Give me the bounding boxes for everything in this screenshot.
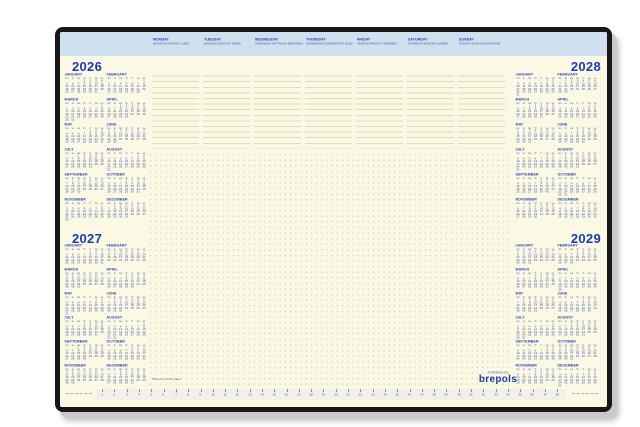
calendar-sheet: MONDAYMAANDAG MONTAG LUNDITUESDAYDINSDAG… (60, 32, 607, 407)
ruler-mark-4: 4 (133, 389, 145, 400)
week-row: 2728293031 (64, 166, 105, 169)
ruler-mark-23: 23 (367, 389, 379, 400)
printed-note-text: Printed on FSC paper (152, 378, 272, 381)
week-row: 31 (515, 169, 556, 172)
mini-month-2027-july: JULYmotuwethfrsasu1234567891011121314151… (64, 316, 105, 340)
week-row: 293031 (515, 262, 556, 265)
day-name-translations: DINSDAG DIENSTAG MARDI (204, 42, 259, 45)
ruler-mark-5: 5 (145, 389, 157, 400)
year-label-2028: 2028 (571, 59, 601, 74)
mini-month-2026-april: APRILmotuwethfrsasu123456789101112131415… (106, 98, 147, 122)
mini-month-2026-december: DECEMBERmotuwethfrsasu123456789101112131… (106, 198, 147, 222)
day-column-label-monday: MONDAYMAANDAG MONTAG LUNDI (153, 38, 203, 54)
ruler-mark-34: 34 (502, 389, 514, 400)
week-row: 25262728293031 (106, 358, 147, 361)
week-row: 22232425262728 (106, 259, 147, 262)
mini-month-2028-may: MAYmotuwethfrsasu12345678910111213141516… (515, 123, 556, 147)
week-row: 25262728293031 (557, 216, 598, 219)
ruler-mark-27: 27 (416, 389, 428, 400)
day-name-translations: VRIJDAG FREITAG VENDREDI (357, 42, 412, 45)
ruler-mark-21: 21 (342, 389, 354, 400)
mini-month-2027-august: AUGUSTmotuwethfrsasu12345678910111213141… (106, 316, 147, 340)
ruled-writing-column (203, 71, 250, 149)
ruler-mark-3: 3 (121, 389, 133, 400)
mini-month-2029-july: JULYmotuwethfrsasu1234567891011121314151… (515, 316, 556, 340)
mini-month-2027-april: APRILmotuwethfrsasu123456789101112131415… (106, 268, 147, 292)
mini-month-2026-september: SEPTEMBERmotuwethfrsasu12345678910111213… (64, 173, 105, 197)
centimeter-ruler: 1234567891011121314151617181920212223242… (96, 389, 566, 400)
ruled-writing-column (152, 71, 199, 149)
brepols-logo: brepols (468, 375, 528, 385)
ruler-mark-22: 22 (354, 389, 366, 400)
week-row: 2728293031 (557, 334, 598, 337)
mini-month-2029-may: MAYmotuwethfrsasu12345678910111213141516… (515, 292, 556, 316)
mini-month-2029-march: MARCHmotuwethfrsasu123456789101112131415… (515, 268, 556, 292)
ruled-writing-column (254, 71, 301, 149)
mini-month-2028-july: JULYmotuwethfrsasu1234567891011121314151… (515, 148, 556, 172)
mini-month-2029-january: JANUARYmotuwethfrsasu1234567891011121314… (515, 244, 556, 268)
ruler-mark-28: 28 (428, 389, 440, 400)
ruler-mark-26: 26 (403, 389, 415, 400)
week-row: 30 (64, 219, 105, 222)
mini-month-2028-june: JUNEmotuwethfrsasu1234567891011121314151… (557, 123, 598, 147)
ruler-mark-24: 24 (379, 389, 391, 400)
ruled-writing-column (356, 71, 403, 149)
mini-month-2028-january: JANUARYmotuwethfrsasu1234567891011121314… (515, 73, 556, 97)
fold-mark-right (572, 393, 598, 394)
week-row: 28293031 (515, 310, 556, 313)
week-row: 28293031 (106, 216, 147, 219)
week-row: 282930 (106, 310, 147, 313)
ruler-mark-37: 37 (539, 389, 551, 400)
week-row: 2728293031 (515, 116, 556, 119)
ruler-mark-18: 18 (305, 389, 317, 400)
week-row: 293031 (64, 286, 105, 289)
ruler-mark-1: 1 (96, 389, 108, 400)
ruler-mark-20: 20 (330, 389, 342, 400)
ruler-mark-31: 31 (465, 389, 477, 400)
ruler-mark-9: 9 (194, 389, 206, 400)
mini-month-2028-april: APRILmotuwethfrsasu123456789101112131415… (557, 98, 598, 122)
ruler-mark-33: 33 (490, 389, 502, 400)
week-row: 262728293031 (106, 191, 147, 194)
mini-month-2027-march: MARCHmotuwethfrsasu123456789101112131415… (64, 268, 105, 292)
fold-mark-left (66, 393, 92, 394)
ruled-writing-column (407, 71, 454, 149)
ruler-mark-6: 6 (157, 389, 169, 400)
ruler-mark-10: 10 (207, 389, 219, 400)
mini-month-2029-february: FEBRUARYmotuwethfrsasu123456789101112131… (557, 244, 598, 268)
ruler-mark-29: 29 (440, 389, 452, 400)
day-column-label-friday: FRIDAYVRIJDAG FREITAG VENDREDI (357, 38, 407, 54)
printed-note: Printed on FSC paper (152, 378, 272, 386)
mini-month-2028-september: SEPTEMBERmotuwethfrsasu12345678910111213… (515, 173, 556, 197)
mini-month-2028-august: AUGUSTmotuwethfrsasu12345678910111213141… (557, 148, 598, 172)
week-row: 25262728293031 (64, 262, 105, 265)
mini-month-2029-june: JUNEmotuwethfrsasu1234567891011121314151… (557, 292, 598, 316)
day-name-translations: DONDERDAG DONNERSTAG JEUDI (306, 42, 361, 45)
week-row: 27282930 (64, 358, 105, 361)
mini-month-2028-february: FEBRUARYmotuwethfrsasu123456789101112131… (557, 73, 598, 97)
mini-month-2027-june: JUNEmotuwethfrsasu1234567891011121314151… (106, 292, 147, 316)
ruled-writing-column (305, 71, 352, 149)
day-name-translations: ZATERDAG SAMSTAG SAMEDI (408, 42, 463, 45)
mini-month-2029-april: APRILmotuwethfrsasu123456789101112131415… (557, 268, 598, 292)
mini-month-2028-october: OCTOBERmotuwethfrsasu1234567891011121314… (557, 173, 598, 197)
week-row: 262728293031 (64, 334, 105, 337)
week-row: 262728293031 (64, 91, 105, 94)
day-column-label-wednesday: WEDNESDAYWOENSDAG MITTWOCH MERCREDI (255, 38, 305, 54)
publisher-block: Published by brepols (468, 370, 528, 385)
ruler-mark-25: 25 (391, 389, 403, 400)
ruler-mark-36: 36 (526, 389, 538, 400)
ruler-mark-11: 11 (219, 389, 231, 400)
week-row: 2728293031 (106, 382, 147, 385)
week-row: 262728293031 (515, 286, 556, 289)
ruler-mark-2: 2 (108, 389, 120, 400)
desk-pad: MONDAYMAANDAG MONTAG LUNDITUESDAYDINSDAG… (55, 27, 612, 412)
ruler-mark-38: 38 (551, 389, 563, 400)
mini-month-2028-december: DECEMBERmotuwethfrsasu123456789101112131… (557, 198, 598, 222)
week-row: 2627282930 (106, 286, 147, 289)
ruler-mark-8: 8 (182, 389, 194, 400)
week-row: 3031 (64, 119, 105, 122)
ruler-mark-14: 14 (256, 389, 268, 400)
mini-month-2026-may: MAYmotuwethfrsasu12345678910111213141516… (64, 123, 105, 147)
day-name-translations: WOENSDAG MITTWOCH MERCREDI (255, 42, 310, 45)
week-row: 252627282930 (557, 310, 598, 313)
mini-month-2026-february: FEBRUARYmotuwethfrsasu123456789101112131… (106, 73, 147, 97)
week-row: 293031 (515, 141, 556, 144)
mini-month-2027-may: MAYmotuwethfrsasu12345678910111213141516… (64, 292, 105, 316)
mini-month-2026-november: NOVEMBERmotuwethfrsasu123456789101112131… (64, 198, 105, 222)
mini-month-2029-october: OCTOBERmotuwethfrsasu1234567891011121314… (557, 340, 598, 364)
ruler-mark-12: 12 (231, 389, 243, 400)
week-row: 2627282930 (557, 141, 598, 144)
mini-month-2029-august: AUGUSTmotuwethfrsasu12345678910111213141… (557, 316, 598, 340)
day-column-label-sunday: SUNDAYZONDAG SONNTAG DIMANCHE (459, 38, 509, 54)
mini-month-2028-november: NOVEMBERmotuwethfrsasu123456789101112131… (515, 198, 556, 222)
ruler-mark-7: 7 (170, 389, 182, 400)
ruler-mark-15: 15 (268, 389, 280, 400)
day-column-label-tuesday: TUESDAYDINSDAG DIENSTAG MARDI (204, 38, 254, 54)
year-label-2026: 2026 (72, 59, 102, 74)
mini-month-2026-july: JULYmotuwethfrsasu1234567891011121314151… (64, 148, 105, 172)
ruler-mark-17: 17 (293, 389, 305, 400)
mini-month-2026-march: MARCHmotuwethfrsasu123456789101112131415… (64, 98, 105, 122)
mini-month-2026-august: AUGUSTmotuwethfrsasu12345678910111213141… (106, 148, 147, 172)
ruled-writing-column (458, 71, 505, 149)
ruler-mark-32: 32 (477, 389, 489, 400)
week-row: 31 (515, 94, 556, 97)
week-row: 3031 (557, 194, 598, 197)
mini-month-2028-march: MARCHmotuwethfrsasu123456789101112131415… (515, 98, 556, 122)
week-row: 27282930 (106, 116, 147, 119)
mini-month-2027-october: OCTOBERmotuwethfrsasu1234567891011121314… (106, 340, 147, 364)
mini-month-2026-january: JANUARYmotuwethfrsasu1234567891011121314… (64, 73, 105, 97)
week-row: 232425262728 (106, 91, 147, 94)
week-row: 2930 (106, 141, 147, 144)
ruler-mark-19: 19 (317, 389, 329, 400)
day-name-translations: MAANDAG MONTAG LUNDI (153, 42, 208, 45)
mini-month-2027-november: NOVEMBERmotuwethfrsasu123456789101112131… (64, 364, 105, 388)
mini-month-2027-december: DECEMBERmotuwethfrsasu123456789101112131… (106, 364, 147, 388)
week-row: 31 (106, 169, 147, 172)
week-row: 262728 (557, 262, 598, 265)
week-row: 293031 (557, 358, 598, 361)
week-row: 252627282930 (515, 191, 556, 194)
day-column-label-saturday: SATURDAYZATERDAG SAMSTAG SAMEDI (408, 38, 458, 54)
week-row: 282930 (64, 191, 105, 194)
ruler-mark-30: 30 (453, 389, 465, 400)
week-row: 31 (557, 385, 598, 388)
week-row: 2829 (557, 91, 598, 94)
ruler-mark-35: 35 (514, 389, 526, 400)
mini-month-2029-september: SEPTEMBERmotuwethfrsasu12345678910111213… (515, 340, 556, 364)
day-name-translations: ZONDAG SONNTAG DIMANCHE (459, 42, 514, 45)
week-row: 24252627282930 (515, 358, 556, 361)
ruler-mark-13: 13 (244, 389, 256, 400)
mini-month-2029-december: DECEMBERmotuwethfrsasu123456789101112131… (557, 364, 598, 388)
week-row: 2930 (64, 382, 105, 385)
mini-month-2026-october: OCTOBERmotuwethfrsasu1234567891011121314… (106, 173, 147, 197)
week-row: 27282930 (515, 216, 556, 219)
mini-month-2026-june: JUNEmotuwethfrsasu1234567891011121314151… (106, 123, 147, 147)
dot-grid-notes-area (148, 152, 511, 388)
day-column-label-thursday: THURSDAYDONDERDAG DONNERSTAG JEUDI (306, 38, 356, 54)
ruler-mark-16: 16 (280, 389, 292, 400)
week-row: 28293031 (557, 166, 598, 169)
mini-month-2027-january: JANUARYmotuwethfrsasu1234567891011121314… (64, 244, 105, 268)
published-by-label: Published by (474, 371, 522, 375)
mini-month-2027-february: FEBRUARYmotuwethfrsasu123456789101112131… (106, 244, 147, 268)
mini-month-2027-september: SEPTEMBERmotuwethfrsasu12345678910111213… (64, 340, 105, 364)
week-row: 24252627282930 (557, 116, 598, 119)
week-row: 25262728293031 (64, 141, 105, 144)
